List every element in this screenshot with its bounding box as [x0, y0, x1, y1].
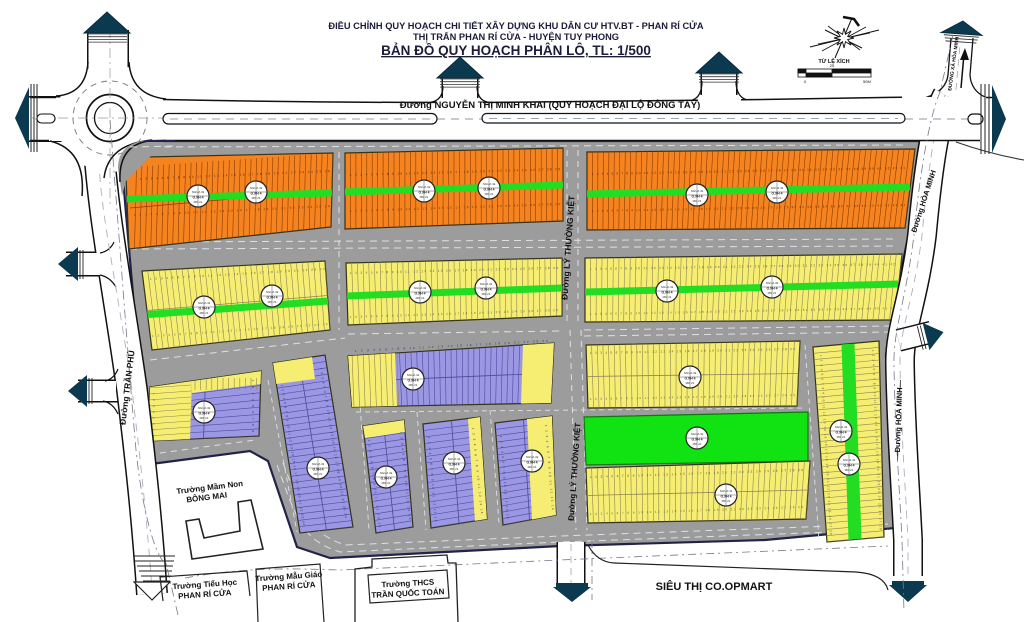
svg-text:MD 21: MD 21: [200, 311, 209, 315]
svg-text:25: 25: [830, 63, 835, 68]
svg-text:O.XH 4: O.XH 4: [691, 195, 702, 199]
svg-text:NGUA 3k: NGUA 3k: [198, 406, 211, 410]
svg-text:NGUA 3k: NGUA 3k: [691, 189, 704, 193]
svg-text:O.XH 4: O.XH 4: [198, 412, 209, 416]
svg-text:MD 21: MD 21: [768, 291, 777, 295]
svg-text:O.XH 4: O.XH 4: [448, 463, 459, 467]
svg-text:NGUA 3k: NGUA 3k: [418, 185, 431, 189]
svg-text:MD 21: MD 21: [485, 192, 494, 196]
svg-text:MD 21: MD 21: [773, 196, 782, 200]
svg-text:NGUA 3k: NGUA 3k: [835, 425, 848, 429]
svg-text:O.XH 4: O.XH 4: [684, 377, 695, 381]
svg-text:NGUA 3k: NGUA 3k: [312, 462, 325, 466]
svg-text:O.XH 4: O.XH 4: [380, 477, 391, 481]
svg-text:O.XH 4: O.XH 4: [835, 431, 846, 435]
svg-text:SIÊU THỊ CO.OPMART: SIÊU THỊ CO.OPMART: [656, 580, 773, 593]
svg-text:O.XH 4: O.XH 4: [843, 464, 854, 468]
svg-text:O.XH 4: O.XH 4: [691, 438, 702, 442]
svg-text:O.XH 4: O.XH 4: [407, 379, 418, 383]
svg-text:NGUA 3k: NGUA 3k: [720, 489, 733, 493]
svg-text:O.XH 4: O.XH 4: [483, 188, 494, 192]
svg-text:O.XH 4: O.XH 4: [766, 287, 777, 291]
svg-text:O.XH 4: O.XH 4: [250, 192, 261, 196]
svg-text:O.XH 4: O.XH 4: [526, 461, 537, 465]
svg-text:MD 21: MD 21: [482, 292, 491, 296]
svg-text:NGUA 3k: NGUA 3k: [414, 286, 427, 290]
svg-text:O.XH 4: O.XH 4: [198, 307, 209, 311]
svg-text:O.XH 4: O.XH 4: [661, 291, 672, 295]
svg-text:O.XH 4: O.XH 4: [192, 196, 203, 200]
svg-text:Đường NGUYỄN THỊ MINH KHAI (QU: Đường NGUYỄN THỊ MINH KHAI (QUY HOẠCH ĐẠ…: [400, 99, 701, 111]
svg-text:ĐIỀU CHỈNH QUY HOẠCH CHI TIẾT: ĐIỀU CHỈNH QUY HOẠCH CHI TIẾT XÂY DỰNG K…: [328, 20, 704, 31]
svg-text:NGUA 3k: NGUA 3k: [766, 281, 779, 285]
svg-text:NGUA 3k: NGUA 3k: [407, 373, 420, 377]
svg-text:MD 21: MD 21: [663, 295, 672, 299]
svg-text:MD 21: MD 21: [382, 481, 391, 485]
svg-text:MD 21: MD 21: [409, 383, 418, 387]
svg-text:MD 21: MD 21: [845, 468, 854, 472]
svg-text:MD 21: MD 21: [194, 200, 203, 204]
svg-text:MD 21: MD 21: [528, 465, 537, 469]
svg-text:NGUA 3k: NGUA 3k: [691, 432, 704, 436]
svg-text:NGUA 3k: NGUA 3k: [266, 290, 279, 294]
svg-text:MD 21: MD 21: [450, 467, 459, 471]
svg-text:O.XH 4: O.XH 4: [266, 296, 277, 300]
svg-text:NGUA 3k: NGUA 3k: [483, 182, 496, 186]
svg-text:NGUA 3k: NGUA 3k: [684, 371, 697, 375]
svg-text:MD 21: MD 21: [693, 442, 702, 446]
svg-text:NGUA 3k: NGUA 3k: [192, 190, 205, 194]
svg-text:MD 21: MD 21: [268, 300, 277, 304]
svg-text:MD 21: MD 21: [416, 296, 425, 300]
svg-text:NGUA 3k: NGUA 3k: [661, 285, 674, 289]
svg-text:NGUA 3k: NGUA 3k: [250, 186, 263, 190]
svg-text:NGUA 3k: NGUA 3k: [198, 301, 211, 305]
svg-text:MD 21: MD 21: [693, 199, 702, 203]
svg-text:O.XH 4: O.XH 4: [414, 292, 425, 296]
svg-text:O.XH 4: O.XH 4: [480, 288, 491, 292]
svg-text:MD 21: MD 21: [686, 381, 695, 385]
svg-text:NGUA 3k: NGUA 3k: [448, 457, 461, 461]
svg-text:MD 21: MD 21: [837, 435, 846, 439]
svg-text:1 2 3 4 5 6 7 8 9: 1 2 3 4 5 6 7 8 9: [251, 380, 255, 432]
svg-text:O.XH 4: O.XH 4: [312, 468, 323, 472]
svg-text:O.XH 4: O.XH 4: [720, 495, 731, 499]
svg-text:NGUA 3k: NGUA 3k: [480, 282, 493, 286]
svg-text:MD 21: MD 21: [314, 472, 323, 476]
svg-text:NGUA 3k: NGUA 3k: [843, 458, 856, 462]
svg-text:MD 21: MD 21: [200, 416, 209, 420]
svg-text:50M: 50M: [863, 79, 871, 84]
svg-text:MD 21: MD 21: [252, 196, 261, 200]
svg-text:MD 21: MD 21: [420, 195, 429, 199]
svg-text:BẢN ĐỒ QUY HOẠCH PHÂN LÔ, TL:: BẢN ĐỒ QUY HOẠCH PHÂN LÔ, TL: 1/500: [381, 43, 651, 58]
svg-text:O.XH 4: O.XH 4: [771, 192, 782, 196]
svg-text:NGUA 3k: NGUA 3k: [526, 455, 539, 459]
svg-text:MD 21: MD 21: [722, 499, 731, 503]
svg-text:NGUA 3k: NGUA 3k: [771, 186, 784, 190]
svg-text:THỊ TRẤN PHAN RÍ CỬA - HUYỆN T: THỊ TRẤN PHAN RÍ CỬA - HUYỆN TUY PHONG: [413, 31, 619, 42]
svg-text:NGUA 3k: NGUA 3k: [380, 471, 393, 475]
svg-text:O.XH 4: O.XH 4: [418, 191, 429, 195]
